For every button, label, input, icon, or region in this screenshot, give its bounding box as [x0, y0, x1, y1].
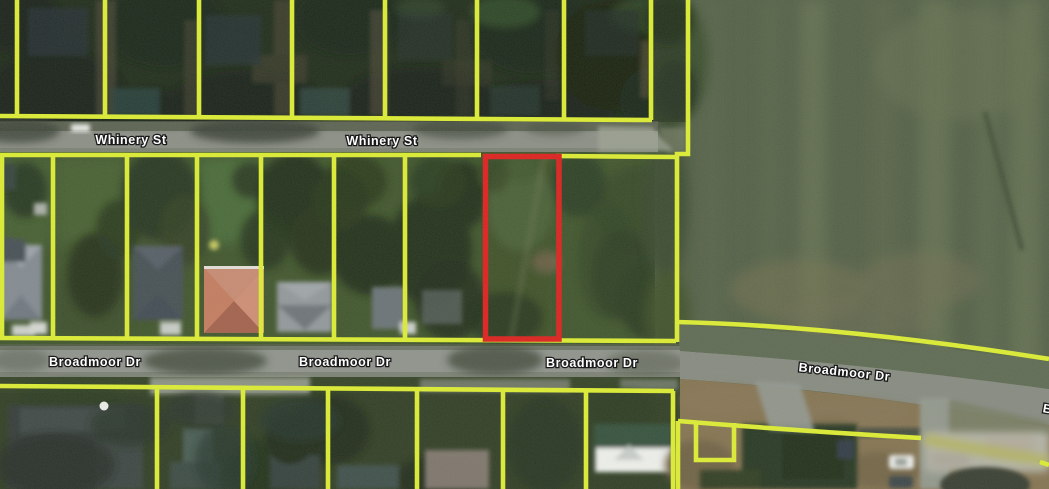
svg-text:Broadmoor Dr: Broadmoor Dr	[546, 356, 638, 370]
svg-text:Broadmoor Dr: Broadmoor Dr	[299, 355, 391, 369]
svg-text:B: B	[1042, 401, 1049, 416]
svg-text:Whinery St: Whinery St	[95, 133, 167, 147]
svg-text:Whinery St: Whinery St	[346, 134, 418, 148]
svg-text:Broadmoor Dr: Broadmoor Dr	[49, 355, 141, 369]
